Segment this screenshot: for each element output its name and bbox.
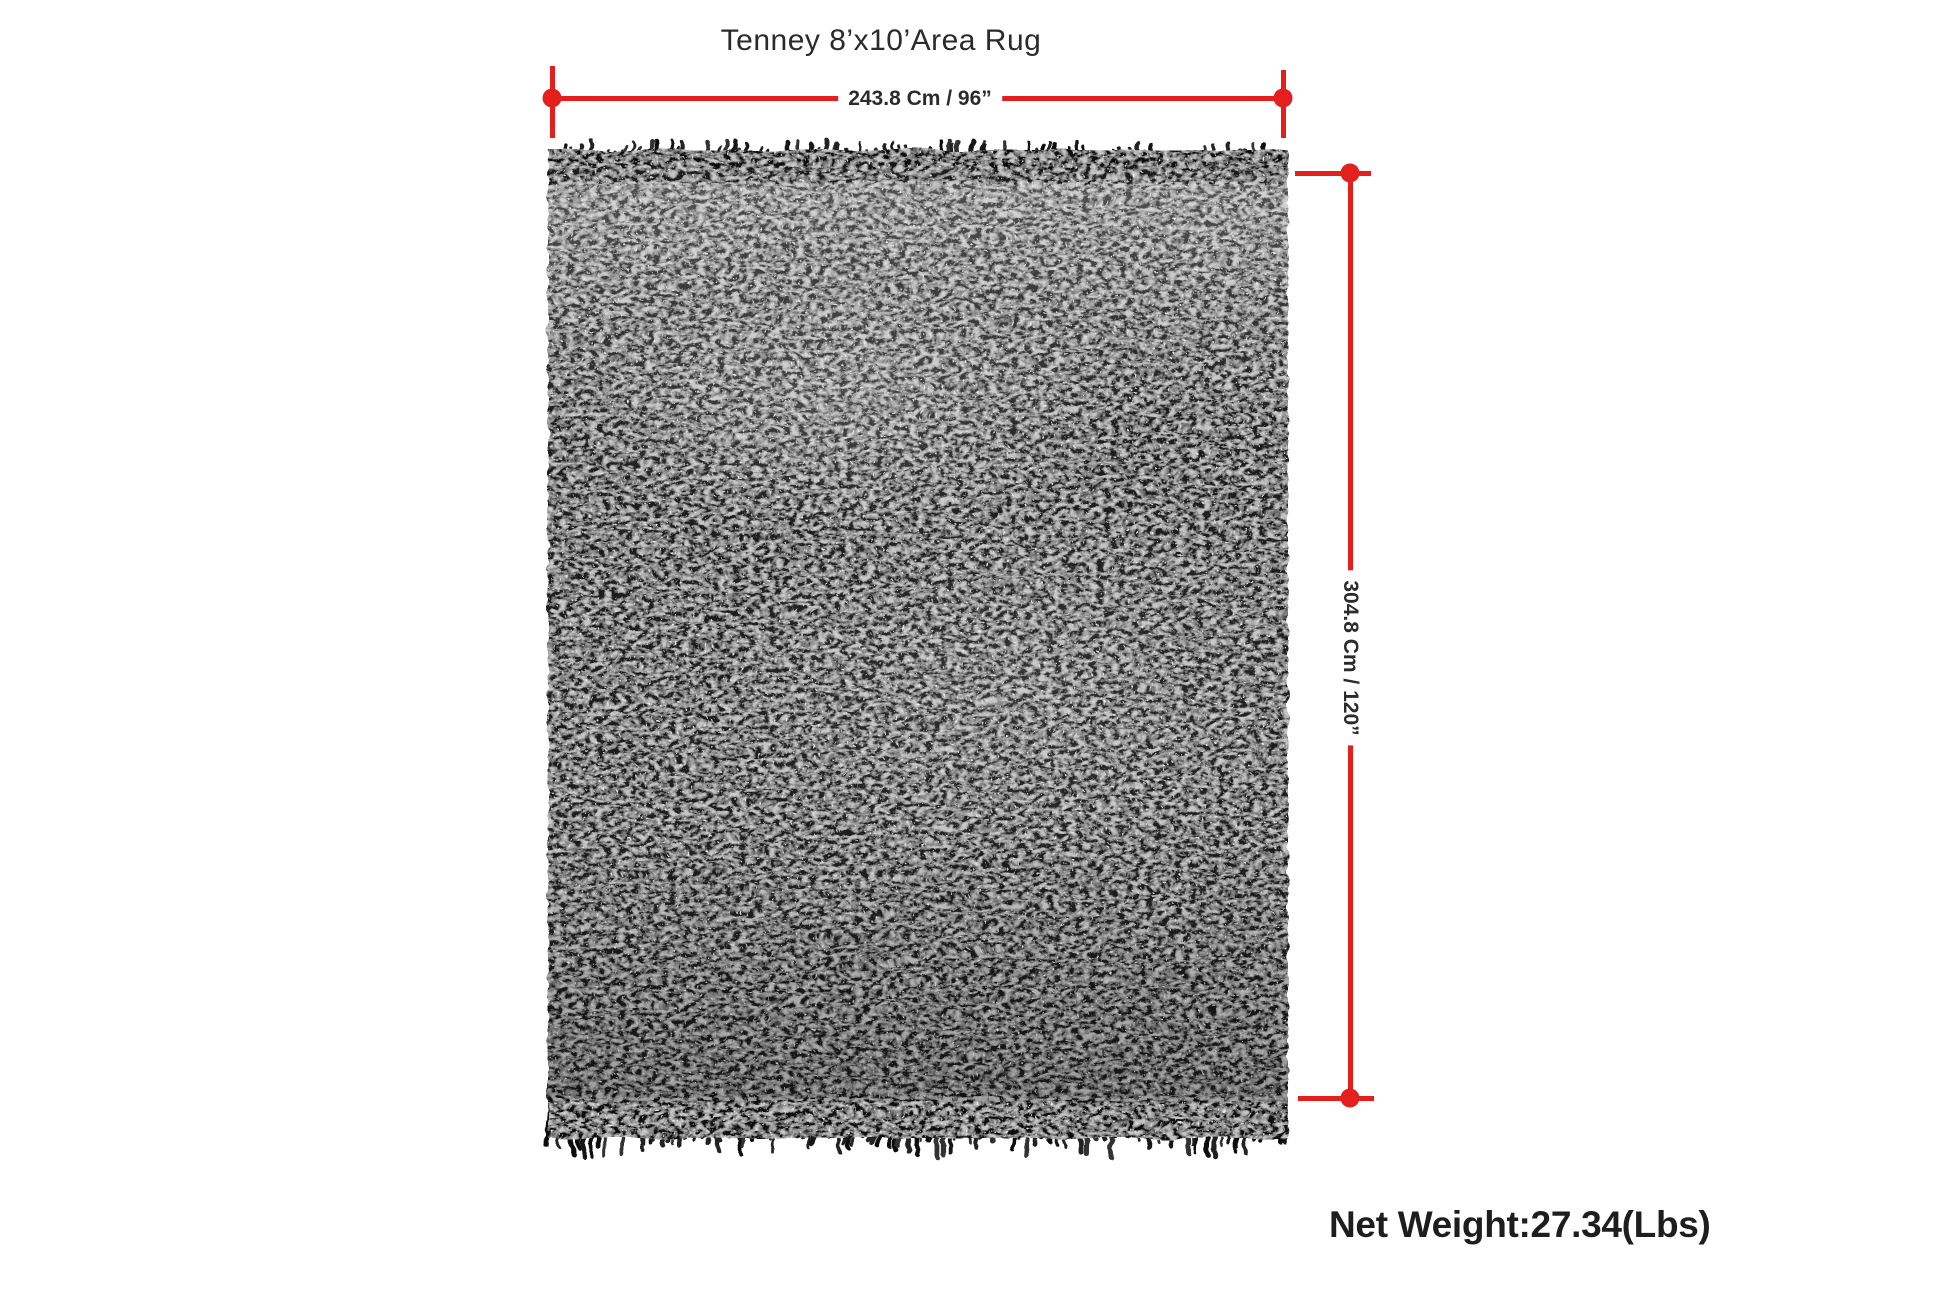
width-dimension-right-endpoint bbox=[1274, 89, 1293, 108]
height-dimension-label: 304.8 Cm / 120” bbox=[1335, 570, 1365, 745]
product-title: Tenney 8’x10’Area Rug bbox=[721, 24, 1042, 58]
rug-image bbox=[540, 126, 1296, 1170]
width-dimension-label: 243.8 Cm / 96” bbox=[838, 84, 1002, 114]
height-dimension-top-endpoint bbox=[1341, 164, 1360, 183]
width-dimension-left-endpoint bbox=[543, 89, 562, 108]
height-dimension-bottom-tick bbox=[1298, 1096, 1374, 1101]
height-dimension-bottom-endpoint bbox=[1341, 1089, 1360, 1108]
product-dimension-diagram: Tenney 8’x10’Area Rug bbox=[0, 0, 1946, 1297]
net-weight-label: Net Weight:27.34(Lbs) bbox=[1329, 1204, 1711, 1246]
height-dimension-top-tick bbox=[1295, 171, 1371, 176]
